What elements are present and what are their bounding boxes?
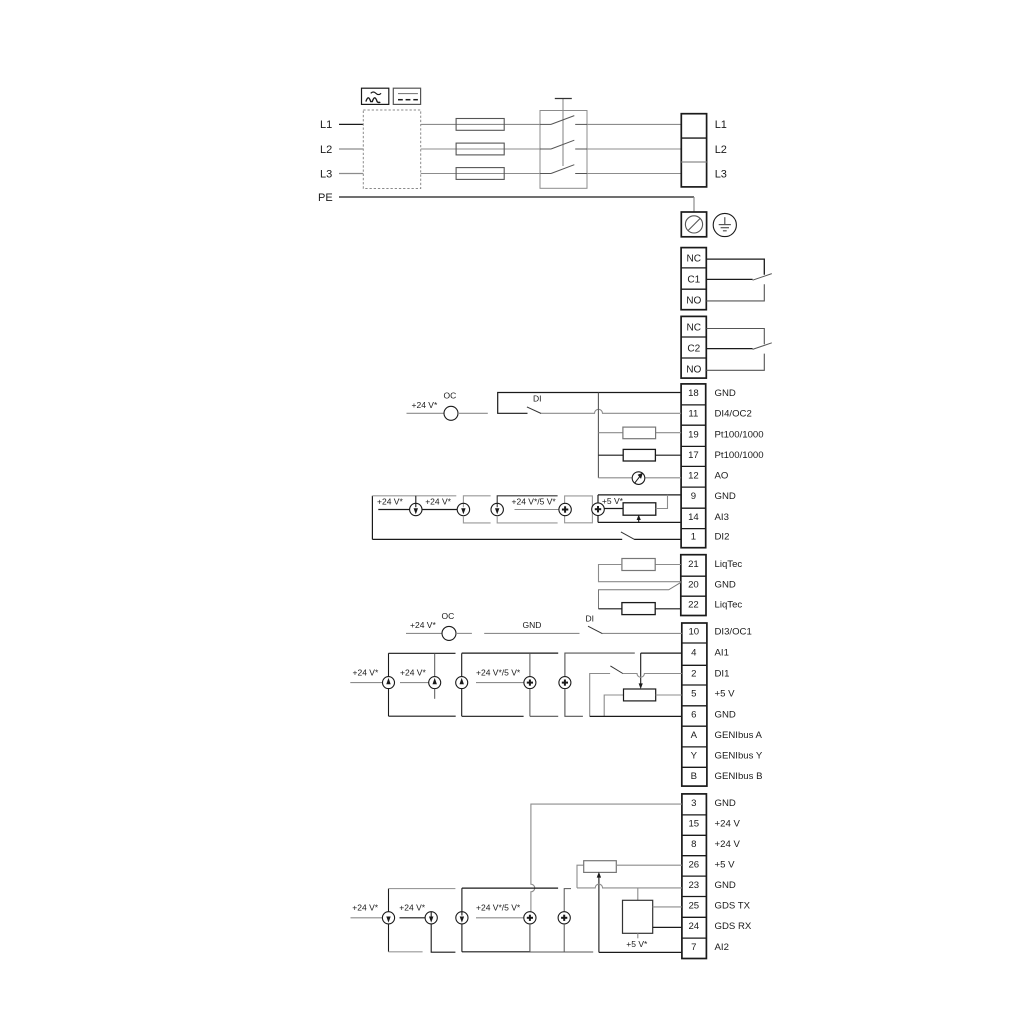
svg-text:+24 V*: +24 V* xyxy=(399,903,425,913)
svg-text:+24 V*: +24 V* xyxy=(377,496,403,506)
svg-text:6: 6 xyxy=(691,710,696,721)
svg-text:OC: OC xyxy=(444,391,457,401)
svg-text:GND: GND xyxy=(715,880,736,891)
svg-text:24: 24 xyxy=(688,921,699,932)
svg-text:26: 26 xyxy=(688,859,699,870)
svg-text:GND: GND xyxy=(715,491,736,502)
svg-text:PE: PE xyxy=(318,192,333,204)
svg-text:AI3: AI3 xyxy=(715,512,729,523)
svg-text:NC: NC xyxy=(687,254,702,265)
svg-text:GDS TX: GDS TX xyxy=(715,900,751,911)
svg-text:L3: L3 xyxy=(715,168,727,180)
svg-text:11: 11 xyxy=(688,409,698,420)
svg-text:19: 19 xyxy=(688,429,699,440)
svg-text:GND: GND xyxy=(715,798,736,809)
svg-text:+24 V*: +24 V* xyxy=(425,496,451,506)
svg-text:GENIbus Y: GENIbus Y xyxy=(715,751,763,762)
svg-text:GND: GND xyxy=(715,710,736,721)
svg-text:9: 9 xyxy=(691,491,696,502)
svg-text:+24 V*/5 V*: +24 V*/5 V* xyxy=(512,496,557,506)
svg-text:NO: NO xyxy=(686,296,701,307)
svg-text:8: 8 xyxy=(691,839,696,850)
svg-text:NO: NO xyxy=(686,365,701,376)
svg-text:14: 14 xyxy=(688,512,699,523)
svg-text:GENIbus A: GENIbus A xyxy=(715,730,763,741)
svg-text:+24 V*: +24 V* xyxy=(400,667,426,677)
svg-text:A: A xyxy=(691,730,698,741)
svg-text:OC: OC xyxy=(442,611,455,621)
svg-text:AI1: AI1 xyxy=(715,648,729,659)
svg-text:25: 25 xyxy=(688,900,699,911)
svg-text:DI1: DI1 xyxy=(715,669,730,680)
svg-text:L2: L2 xyxy=(715,144,727,156)
svg-text:+5 V*: +5 V* xyxy=(602,496,624,506)
svg-text:AO: AO xyxy=(715,470,729,481)
svg-text:18: 18 xyxy=(688,388,699,399)
svg-text:L1: L1 xyxy=(320,119,332,131)
svg-text:23: 23 xyxy=(688,880,699,891)
svg-text:1: 1 xyxy=(691,532,696,543)
svg-text:22: 22 xyxy=(688,599,699,610)
svg-text:7: 7 xyxy=(691,942,696,953)
svg-text:DI4/OC2: DI4/OC2 xyxy=(715,409,752,420)
svg-text:C2: C2 xyxy=(687,344,700,355)
svg-text:L3: L3 xyxy=(320,168,332,180)
svg-text:B: B xyxy=(691,771,697,782)
svg-text:LiqTec: LiqTec xyxy=(715,559,743,570)
svg-text:Pt100/1000: Pt100/1000 xyxy=(715,450,764,461)
svg-text:GDS RX: GDS RX xyxy=(715,921,752,932)
svg-text:Y: Y xyxy=(691,751,698,762)
svg-text:DI3/OC1: DI3/OC1 xyxy=(715,627,752,638)
svg-text:DI: DI xyxy=(533,394,542,404)
svg-text:LiqTec: LiqTec xyxy=(715,599,743,610)
svg-text:+24 V*/5 V*: +24 V*/5 V* xyxy=(476,903,521,913)
svg-text:GND: GND xyxy=(523,620,542,630)
svg-text:+24 V*/5 V*: +24 V*/5 V* xyxy=(476,667,521,677)
svg-text:+24 V*: +24 V* xyxy=(410,620,436,630)
svg-text:17: 17 xyxy=(688,450,699,461)
svg-text:AI2: AI2 xyxy=(715,942,729,953)
svg-text:L1: L1 xyxy=(715,119,727,131)
svg-text:+5 V*: +5 V* xyxy=(626,939,648,949)
svg-text:+24 V*: +24 V* xyxy=(353,667,379,677)
svg-text:4: 4 xyxy=(691,648,697,659)
svg-text:2: 2 xyxy=(691,669,696,680)
svg-text:DI2: DI2 xyxy=(715,532,730,543)
svg-text:GND: GND xyxy=(715,580,736,591)
svg-text:12: 12 xyxy=(688,470,699,481)
svg-text:+5 V: +5 V xyxy=(715,859,736,870)
svg-text:C1: C1 xyxy=(687,275,700,286)
svg-text:10: 10 xyxy=(688,627,699,638)
svg-text:21: 21 xyxy=(688,559,699,570)
svg-text:3: 3 xyxy=(691,798,696,809)
svg-text:+24 V: +24 V xyxy=(715,819,741,830)
svg-text:+24 V*: +24 V* xyxy=(412,400,438,410)
svg-text:GND: GND xyxy=(715,388,736,399)
svg-text:Pt100/1000: Pt100/1000 xyxy=(715,429,764,440)
svg-text:+5 V: +5 V xyxy=(715,689,736,700)
svg-text:5: 5 xyxy=(691,689,696,700)
svg-text:NC: NC xyxy=(687,322,702,333)
svg-text:DI: DI xyxy=(586,614,595,624)
svg-text:GENIbus B: GENIbus B xyxy=(715,771,763,782)
svg-text:+24 V: +24 V xyxy=(715,839,741,850)
svg-text:20: 20 xyxy=(688,580,699,591)
svg-text:L2: L2 xyxy=(320,144,332,156)
svg-text:15: 15 xyxy=(688,819,699,830)
svg-text:+24 V*: +24 V* xyxy=(352,903,378,913)
